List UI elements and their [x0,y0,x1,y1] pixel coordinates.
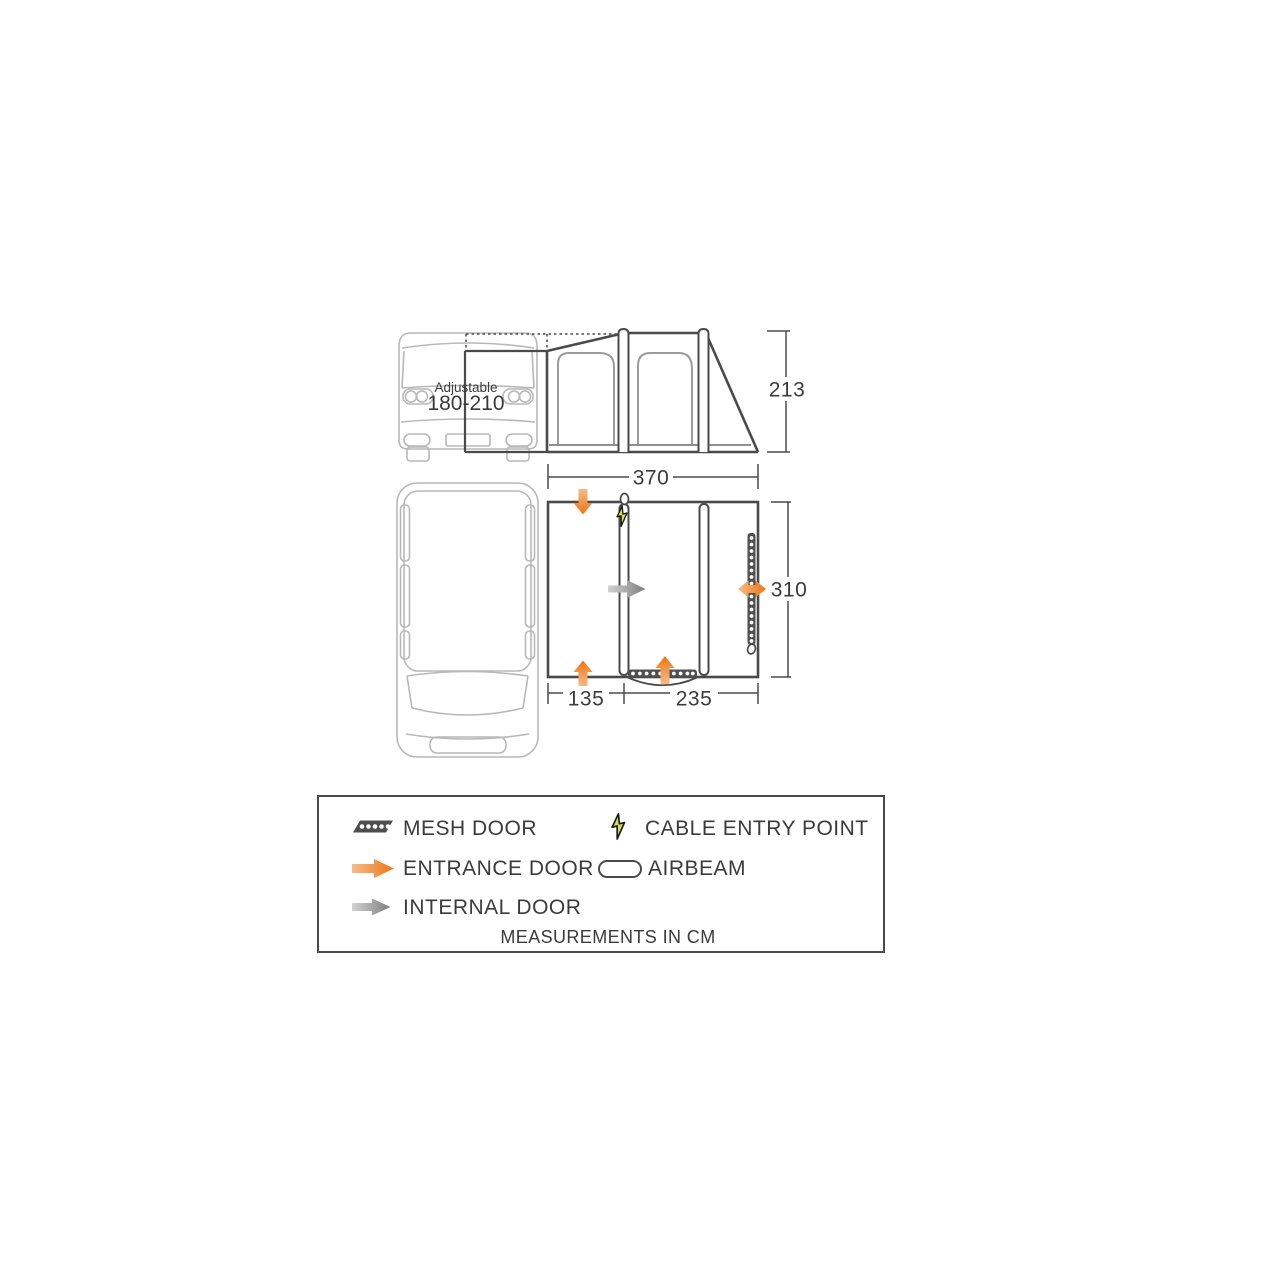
airbeam-divider [700,504,709,675]
awning-side-elevation [547,329,758,452]
roof-rear-slope [705,331,758,452]
dim-height-value: 213 [769,379,806,402]
legend-item-airbeam: AIRBEAM [599,857,746,880]
mesh-door-icon [353,821,393,833]
floor-plan-outline [548,502,758,677]
airbeam-pole [699,329,709,452]
airbeam-pole [619,329,629,452]
dim-section-235: 235 [624,683,758,711]
airbeam-icon [599,861,641,877]
diagram-svg: Adjustable 180-210 [0,0,1280,1280]
legend-label-mesh-door: MESH DOOR [403,817,537,840]
awning-dimension-diagram: Adjustable 180-210 [0,0,1280,1280]
legend-label-airbeam: AIRBEAM [648,857,746,880]
legend-box: MESH DOOR CABLE ENTRY POINT ENTRANCE DOO… [318,796,884,952]
cable-entry-loop [621,494,629,505]
awning-floor-plan [548,489,766,686]
dim-depth-value: 310 [771,579,808,602]
adjustable-range: 180-210 [427,392,504,415]
dim-height-213: 213 [767,331,806,452]
dim-section-right-value: 235 [676,688,713,711]
dim-width-370: 370 [548,464,758,490]
dim-section-135: 135 [548,683,624,711]
van-top-view [397,483,538,757]
legend-item-cable-entry: CABLE ENTRY POINT [609,813,868,840]
dim-width-value: 370 [633,467,670,490]
legend-label-internal-door: INTERNAL DOOR [403,896,581,919]
legend-footer: MEASUREMENTS IN CM [500,927,715,947]
dim-section-left-value: 135 [568,688,605,711]
legend-label-entrance-door: ENTRANCE DOOR [403,857,594,880]
roof-front-slope [547,334,620,351]
legend-label-cable-entry: CABLE ENTRY POINT [645,817,869,840]
dim-depth-310: 310 [769,502,809,677]
